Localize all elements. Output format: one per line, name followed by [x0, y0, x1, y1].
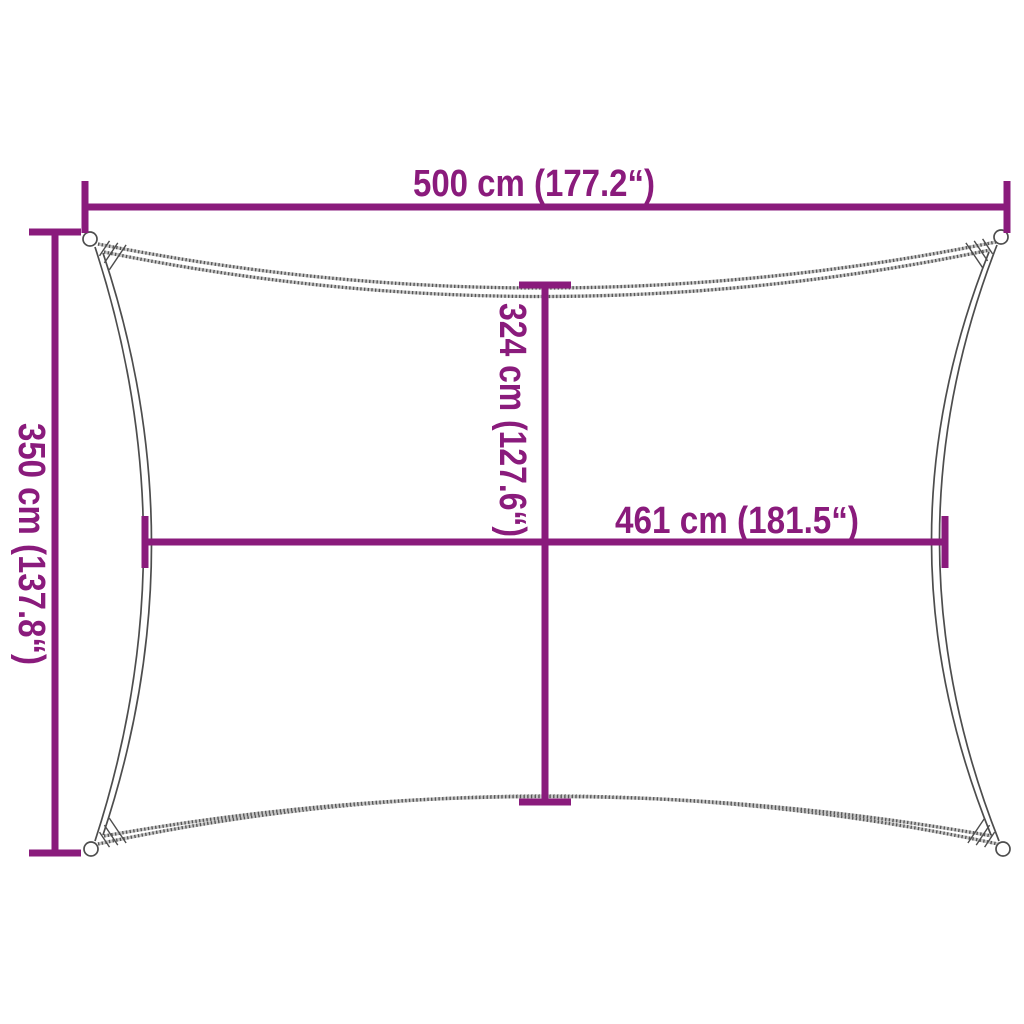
- center-width-dimension-label: 461 cm (181.5“): [615, 500, 859, 542]
- shade-sail-dimension-drawing: 500 cm (177.2“) 350 cm (137.8“) 324 cm (…: [0, 0, 1024, 1024]
- center-height-dimension-label: 324 cm (127.6“): [491, 303, 533, 537]
- corner-loop-bottom-right: [996, 842, 1010, 856]
- dimension-diagram: 500 cm (177.2“) 350 cm (137.8“) 324 cm (…: [0, 0, 1024, 1024]
- corner-loop-top-left: [83, 232, 97, 246]
- left-height-dimension-label: 350 cm (137.8“): [10, 423, 52, 665]
- corner-loop-bottom-left: [84, 842, 98, 856]
- top-width-dimension-label: 500 cm (177.2“): [413, 163, 655, 205]
